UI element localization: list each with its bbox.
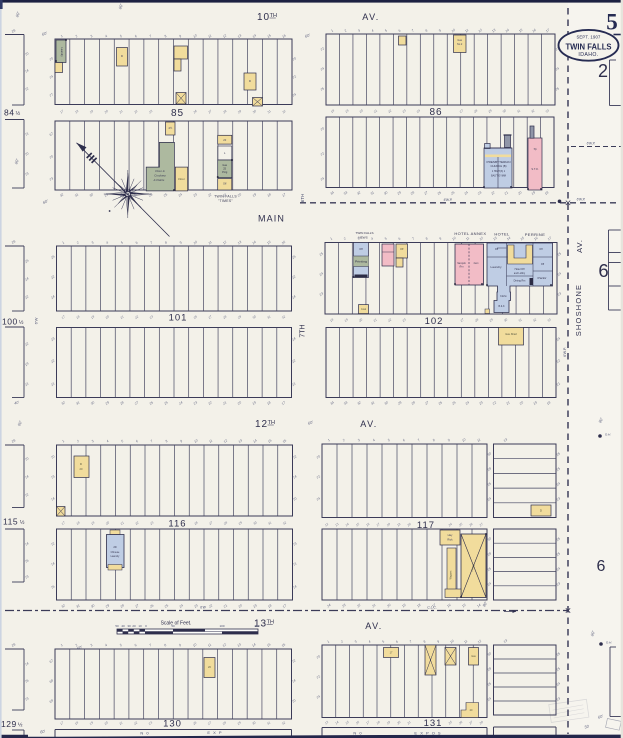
svg-text:10: 10 (138, 624, 142, 628)
svg-text:Printing: Printing (355, 261, 368, 264)
svg-text:129: 129 (1, 719, 17, 729)
svg-text:CHURCH (B): CHURCH (B) (491, 164, 507, 168)
svg-text:AV.: AV. (360, 419, 378, 429)
svg-text:6'W.P.: 6'W.P. (444, 198, 453, 202)
svg-text:Rm: Rm (460, 266, 464, 269)
svg-text:Dining Rm: Dining Rm (514, 280, 526, 283)
svg-text:O.H.: O.H. (606, 641, 612, 645)
svg-text:AV.: AV. (575, 239, 584, 253)
svg-text:Off: Off (400, 247, 404, 251)
svg-text:E X P: E X P (207, 730, 222, 735)
svg-text:½: ½ (19, 319, 24, 326)
svg-text:84: 84 (4, 108, 14, 118)
svg-text:O.H.: O.H. (605, 433, 611, 437)
svg-text:Hotel Off: Hotel Off (515, 268, 525, 271)
svg-text:102: 102 (425, 316, 444, 327)
svg-text:Flour &: Flour & (155, 169, 164, 173)
svg-text:MAIN: MAIN (258, 214, 285, 224)
svg-text:50: 50 (115, 624, 119, 628)
svg-text:40: 40 (121, 624, 125, 628)
svg-text:Gen: Gen (474, 262, 479, 265)
svg-text:Off: Off (541, 263, 544, 266)
svg-text:TWIN FALLS: TWIN FALLS (566, 42, 612, 51)
svg-text:Gas: Gas (457, 39, 462, 42)
svg-text:& Paints: & Paints (154, 178, 165, 182)
svg-text:101: 101 (169, 313, 188, 324)
svg-text:4½: 4½ (168, 126, 173, 130)
svg-text:6: 6 (598, 260, 608, 281)
svg-text:100: 100 (219, 624, 224, 628)
svg-text:Laundry: Laundry (491, 266, 503, 269)
svg-text:Wagons: Wagons (450, 570, 453, 579)
svg-text:and Lobby: and Lobby (514, 272, 526, 275)
svg-text:ANNEX: ANNEX (471, 231, 487, 236)
svg-text:Coal: Coal (361, 308, 366, 311)
svg-text:No 2: No 2 (457, 43, 463, 46)
svg-text:SHOSHONE: SHOSHONE (574, 284, 583, 337)
svg-text:6'W.P.: 6'W.P. (577, 198, 586, 202)
svg-text:20: 20 (132, 624, 136, 628)
svg-text:Chinese: Chinese (111, 551, 120, 554)
svg-text:Scale of Feet.: Scale of Feet. (161, 621, 192, 627)
svg-text:117: 117 (417, 520, 435, 531)
svg-text:6: 6 (597, 558, 606, 575)
svg-text:6'W.P.: 6'W.P. (587, 142, 596, 146)
svg-text:130: 130 (163, 719, 182, 730)
svg-text:7TH: 7TH (300, 324, 307, 337)
svg-text:N 0: N 0 (353, 731, 362, 736)
svg-text:Gas Shed: Gas Shed (505, 332, 517, 336)
svg-text:"TIMES": "TIMES" (218, 199, 233, 203)
svg-text:50: 50 (171, 624, 175, 628)
svg-text:6TH: 6TH (300, 194, 305, 203)
svg-text:Off: Off (359, 247, 363, 251)
svg-text:Parlor: Parlor (538, 277, 547, 280)
svg-text:12: 12 (255, 419, 268, 430)
svg-text:Laundry: Laundry (111, 555, 120, 558)
svg-text:100: 100 (2, 317, 18, 327)
svg-text:85: 85 (171, 108, 184, 119)
svg-text:½: ½ (16, 110, 21, 117)
svg-text:150: 150 (254, 624, 259, 628)
svg-text:C.L.C.: C.L.C. (427, 606, 437, 610)
svg-text:Kitchn: Kitchn (500, 295, 507, 298)
svg-text:Gas: Gas (222, 164, 227, 167)
svg-text:30: 30 (127, 624, 131, 628)
svg-text:Pntg: Pntg (222, 171, 228, 174)
svg-text:½: ½ (18, 722, 23, 729)
svg-text:6'W.P.: 6'W.P. (563, 347, 567, 357)
svg-text:116: 116 (168, 519, 186, 530)
svg-text:115: 115 (3, 517, 18, 527)
svg-text:6'W: 6'W (200, 606, 207, 610)
svg-text:Off: Off (223, 182, 227, 186)
svg-text:131: 131 (424, 718, 443, 729)
svg-text:5: 5 (606, 10, 618, 35)
svg-text:Off: Off (495, 248, 498, 251)
svg-text:Sample: Sample (457, 262, 466, 265)
svg-text:Laundry: Laundry (60, 47, 64, 57)
svg-text:Gas: Gas (471, 655, 476, 658)
svg-text:86: 86 (429, 107, 442, 118)
svg-text:SEPT. 1907: SEPT. 1907 (576, 35, 601, 40)
svg-text:IDAHO.: IDAHO. (578, 52, 598, 58)
svg-text:HOTEL: HOTEL (454, 231, 470, 236)
svg-text:2D: 2D (113, 545, 116, 549)
svg-text:Crockery: Crockery (154, 174, 166, 178)
svg-text:BAS'T GYMM: BAS'T GYMM (491, 175, 506, 178)
svg-text:6'W: 6'W (34, 317, 39, 324)
svg-text:2: 2 (598, 61, 608, 81)
svg-text:Rick: Rick (447, 538, 453, 542)
svg-text:1 HIGH(X) 1: 1 HIGH(X) 1 (492, 170, 506, 173)
svg-text:NEWS: NEWS (358, 235, 367, 239)
svg-text:Flour: Flour (178, 177, 186, 181)
svg-text:PRESBYTERIAN: PRESBYTERIAN (487, 160, 511, 164)
svg-text:½: ½ (20, 519, 25, 526)
svg-text:Off: Off (539, 248, 542, 251)
svg-text:AV.: AV. (365, 621, 383, 631)
svg-text:AV.: AV. (362, 12, 380, 22)
svg-text:B & K: B & K (498, 305, 505, 308)
svg-text:10: 10 (257, 12, 270, 23)
svg-text:Hay: Hay (448, 533, 453, 537)
svg-text:N 0: N 0 (140, 731, 149, 736)
svg-text:E X P O S: E X P O S (414, 731, 441, 736)
svg-text:S.T.O.: S.T.O. (531, 167, 538, 171)
